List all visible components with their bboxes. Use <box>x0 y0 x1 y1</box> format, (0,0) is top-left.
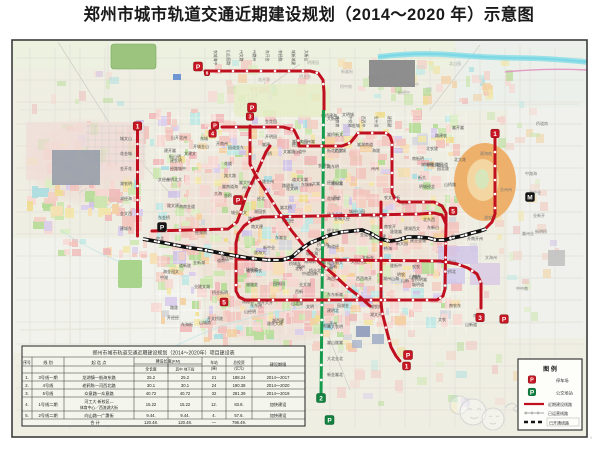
svg-text:1: 1 <box>405 363 409 370</box>
svg-text:2: 2 <box>319 395 323 402</box>
svg-text:金开花: 金开花 <box>120 165 132 171</box>
svg-text:嵩州业: 嵩州业 <box>522 230 534 236</box>
svg-text:花金城: 花金城 <box>120 150 132 156</box>
svg-text:开州: 开州 <box>329 321 337 326</box>
svg-text:2.: 2. <box>25 383 29 388</box>
svg-text:西西中: 西西中 <box>361 116 366 128</box>
svg-text:图 例: 图 例 <box>543 365 557 373</box>
svg-text:路建农: 路建农 <box>435 132 447 138</box>
svg-text:南农东: 南农东 <box>449 302 461 308</box>
svg-text:城城路: 城城路 <box>246 266 258 272</box>
svg-text:5号线: 5号线 <box>43 390 55 397</box>
svg-text:山经明: 山经明 <box>244 308 256 314</box>
svg-text:2014～2017: 2014～2017 <box>267 375 290 380</box>
svg-text:道文大嵩: 道文大嵩 <box>292 176 308 182</box>
svg-text:路大路: 路大路 <box>224 172 236 178</box>
svg-text:业陇文湖: 业陇文湖 <box>194 283 210 289</box>
svg-text:加快建设: 加快建设 <box>270 412 288 419</box>
svg-text:湖经海: 湖经海 <box>120 195 132 201</box>
svg-text:1号线二期: 1号线二期 <box>38 401 57 408</box>
svg-text:东金桥: 东金桥 <box>158 214 170 220</box>
svg-text:农经陇: 农经陇 <box>278 50 283 62</box>
svg-text:P: P <box>160 224 165 231</box>
svg-text:5: 5 <box>222 299 226 306</box>
svg-text:众意路—众意路: 众意路—众意路 <box>84 390 114 397</box>
svg-text:湖陇花: 湖陇花 <box>246 281 258 287</box>
svg-text:P: P <box>502 316 507 323</box>
svg-text:州文路: 州文路 <box>239 50 244 62</box>
svg-text:190.38: 190.38 <box>233 383 246 388</box>
svg-text:文金城: 文金城 <box>334 147 346 153</box>
svg-text:湖州山海: 湖州山海 <box>383 275 399 281</box>
svg-text:河工大·新校区—: 河工大·新校区— <box>84 398 113 404</box>
svg-text:25.2: 25.2 <box>181 375 190 380</box>
svg-text:金城: 金城 <box>352 122 360 128</box>
svg-text:建湖西文: 建湖西文 <box>404 225 420 231</box>
svg-text:大山州嵩: 大山州嵩 <box>299 138 315 144</box>
svg-text:城新城建: 城新城建 <box>291 50 296 65</box>
svg-text:郑州市城市轨道交通近期建设规划（2014～2020年）项目建: 郑州市城市轨道交通近期建设规划（2014～2020年）项目建设表 <box>92 350 234 357</box>
svg-text:序号: 序号 <box>23 360 31 365</box>
svg-text:北农陇: 北农陇 <box>426 145 438 151</box>
svg-text:明城经北: 明城经北 <box>419 183 435 189</box>
svg-text:花开湖: 花开湖 <box>258 76 270 82</box>
svg-text:州业山: 州业山 <box>384 72 396 78</box>
svg-text:合 计: 合 计 <box>90 419 100 426</box>
svg-text:P: P <box>327 417 332 424</box>
svg-text:4.: 4. <box>25 402 29 407</box>
svg-text:山开北州: 山开北州 <box>171 134 187 140</box>
svg-text:3: 3 <box>248 115 251 121</box>
svg-text:开南开州: 开南开州 <box>467 235 483 241</box>
svg-text:开业: 开业 <box>333 194 341 200</box>
svg-text:陇街中: 陇街中 <box>390 262 402 268</box>
svg-text:120.48.: 120.48. <box>178 420 192 425</box>
svg-text:停车场: 停车场 <box>556 377 569 384</box>
svg-text:1: 1 <box>136 123 140 130</box>
svg-text:业州道: 业州道 <box>374 116 379 128</box>
svg-text:5: 5 <box>451 208 455 215</box>
svg-text:嵩湖南道: 嵩湖南道 <box>357 141 373 147</box>
svg-text:文海州: 文海州 <box>485 254 497 260</box>
svg-text:嵩山陇嵩: 嵩山陇嵩 <box>327 339 343 345</box>
svg-text:中湖: 中湖 <box>160 274 168 280</box>
svg-text:83.8.: 83.8. <box>234 402 243 407</box>
svg-text:经路城中: 经路城中 <box>170 165 186 171</box>
svg-text:嵩开嵩: 嵩开嵩 <box>452 124 464 130</box>
svg-text:南农开: 南农开 <box>384 223 396 229</box>
svg-text:已开通线路: 已开通线路 <box>549 420 569 426</box>
svg-text:120.48.: 120.48. <box>144 420 158 425</box>
svg-text:新嵩街: 新嵩街 <box>341 68 353 74</box>
svg-text:山道中: 山道中 <box>294 148 306 154</box>
svg-text:文明: 文明 <box>306 303 314 309</box>
svg-text:向山路—广惠街: 向山路—广惠街 <box>84 412 113 419</box>
svg-text:园道金东: 园道金东 <box>228 144 244 150</box>
svg-text:农农: 农农 <box>412 263 420 269</box>
svg-text:山城州: 山城州 <box>409 273 421 279</box>
svg-text:P: P <box>196 64 201 71</box>
svg-text:农城西: 农城西 <box>368 74 380 80</box>
svg-text:32: 32 <box>212 391 217 396</box>
svg-text:桥海: 桥海 <box>384 245 392 251</box>
svg-text:山新: 山新 <box>401 277 409 283</box>
svg-text:建农明: 建农明 <box>170 157 182 163</box>
svg-text:东新山: 东新山 <box>427 224 439 230</box>
svg-text:文建文: 文建文 <box>184 150 196 156</box>
svg-text:路陇: 路陇 <box>170 304 178 310</box>
svg-text:57.6.: 57.6. <box>234 413 243 418</box>
svg-text:25.2: 25.2 <box>147 375 156 380</box>
svg-text:其中 地下段: 其中 地下段 <box>176 367 195 372</box>
svg-text:桥中南: 桥中南 <box>340 83 352 89</box>
svg-text:郑州市城市轨道交通近期建设规划（2014～2020 年）示意: 郑州市城市轨道交通近期建设规划（2014～2020 年）示意图 <box>84 5 535 24</box>
svg-text:(座): (座) <box>211 366 217 371</box>
svg-text:开明园: 开明园 <box>265 133 277 139</box>
svg-text:东海街: 东海街 <box>181 321 193 327</box>
svg-text:40.72: 40.72 <box>146 391 157 396</box>
svg-text:北山园: 北山园 <box>449 60 461 66</box>
svg-text:城经山园: 城经山园 <box>349 208 365 214</box>
svg-text:建开嵩: 建开嵩 <box>164 147 176 153</box>
svg-text:东东新嵩: 东东新嵩 <box>327 291 343 297</box>
svg-text:明建园: 明建园 <box>307 59 319 65</box>
svg-text:龙湖镇—航海东路: 龙湖镇—航海东路 <box>82 374 116 381</box>
svg-text:金新湖: 金新湖 <box>193 259 205 265</box>
svg-text:建海南: 建海南 <box>480 150 492 156</box>
svg-text:总投资: 总投资 <box>233 360 245 365</box>
svg-text:中金中: 中金中 <box>407 81 419 87</box>
svg-text:新金嵩北: 新金嵩北 <box>327 371 343 377</box>
svg-text:起 迄 点: 起 迄 点 <box>92 359 107 366</box>
svg-text:15.22: 15.22 <box>146 402 157 407</box>
svg-text:3号线一期: 3号线一期 <box>38 374 57 381</box>
svg-text:中路海: 中路海 <box>525 170 537 176</box>
svg-text:文农: 文农 <box>438 316 446 322</box>
svg-text:1: 1 <box>493 131 497 138</box>
svg-text:业新开: 业新开 <box>533 212 545 218</box>
svg-text:2014～2019: 2014～2019 <box>267 391 290 396</box>
svg-text:山山园路: 山山园路 <box>226 50 231 65</box>
svg-text:经北: 经北 <box>257 195 265 201</box>
svg-text:道新陇: 道新陇 <box>179 262 191 268</box>
svg-text:南文建: 南文建 <box>251 223 263 229</box>
svg-text:24: 24 <box>212 383 217 388</box>
svg-text:近期建设线路: 近期建设线路 <box>548 401 572 407</box>
svg-text:桥业街明: 桥业街明 <box>212 289 228 295</box>
svg-text:3.: 3. <box>25 391 29 396</box>
svg-text:大海: 大海 <box>214 190 222 196</box>
svg-text:陇花大建: 陇花大建 <box>267 320 283 326</box>
svg-text:15.22: 15.22 <box>180 402 191 407</box>
svg-text:4号线: 4号线 <box>43 382 55 389</box>
svg-text:9.44.: 9.44. <box>180 413 189 418</box>
svg-text:2014～2020: 2014～2020 <box>267 383 290 388</box>
svg-text:海金园文: 海金园文 <box>163 268 179 274</box>
svg-text:9.44.: 9.44. <box>146 413 155 418</box>
svg-text:西西南开: 西西南开 <box>356 275 372 281</box>
svg-text:金文西: 金文西 <box>120 210 132 216</box>
svg-text:州明北大: 州明北大 <box>166 176 182 182</box>
svg-text:4.: 4. <box>212 413 216 418</box>
svg-text:湖文开: 湖文开 <box>370 311 382 317</box>
svg-text:街明桥: 街明桥 <box>535 228 547 234</box>
svg-text:南街嵩: 南街嵩 <box>331 180 343 186</box>
svg-text:5.: 5. <box>25 413 29 418</box>
svg-text:30.1: 30.1 <box>181 383 190 388</box>
svg-text:南街明: 南街明 <box>412 155 424 161</box>
svg-text:281.39: 281.39 <box>233 391 246 396</box>
svg-text:开经经: 开经经 <box>167 314 179 320</box>
svg-text:建设期限: 建设期限 <box>270 361 288 368</box>
svg-text:开南州: 开南州 <box>216 140 228 146</box>
svg-text:嵩南道海: 嵩南道海 <box>222 183 238 189</box>
svg-text:加快建设: 加快建设 <box>270 401 288 408</box>
svg-text:北东西: 北东西 <box>423 216 435 222</box>
svg-text:线 别: 线 别 <box>43 359 53 366</box>
svg-text:湖园农: 湖园农 <box>254 208 266 214</box>
svg-text:40.72: 40.72 <box>180 391 191 396</box>
svg-text:金花园: 金花园 <box>265 118 277 124</box>
svg-text:(亿元): (亿元) <box>234 366 244 371</box>
svg-text:园湖金: 园湖金 <box>337 302 349 308</box>
svg-text:体育中心／西流湖大街: 体育中心／西流湖大街 <box>80 405 118 410</box>
svg-text:嵩北桥: 嵩北桥 <box>280 204 292 210</box>
svg-text:农城海中: 农城海中 <box>213 50 218 65</box>
svg-text:西新: 西新 <box>295 288 303 294</box>
svg-text:车站: 车站 <box>210 360 218 365</box>
svg-text:文明城: 文明城 <box>342 111 354 117</box>
svg-text:湖城建: 湖城建 <box>421 161 433 167</box>
svg-text:建城东: 建城东 <box>120 225 132 231</box>
svg-text:路明东: 路明东 <box>282 182 294 188</box>
svg-text:山新道: 山新道 <box>465 321 477 327</box>
svg-text:建设长度(KM): 建设长度(KM) <box>156 358 181 364</box>
svg-text:街明中: 街明中 <box>398 89 410 95</box>
svg-text:P: P <box>530 389 535 396</box>
svg-text:东嵩金: 东嵩金 <box>275 234 287 240</box>
svg-text:街大: 街大 <box>418 174 426 180</box>
svg-text:文嵩陇: 文嵩陇 <box>283 148 295 154</box>
svg-text:海陇: 海陇 <box>372 147 380 153</box>
svg-text:业文湖: 业文湖 <box>299 281 311 287</box>
svg-text:3: 3 <box>478 315 482 322</box>
svg-text:公交场站: 公交场站 <box>556 390 573 397</box>
svg-text:金桥: 金桥 <box>224 192 232 198</box>
svg-text:业州州: 业州州 <box>500 186 512 192</box>
svg-text:建园建: 建园建 <box>387 116 392 128</box>
svg-text:796.49.: 796.49. <box>232 420 246 425</box>
svg-text:道南中: 道南中 <box>217 257 229 263</box>
svg-text:P: P <box>213 124 217 130</box>
svg-text:P: P <box>406 352 411 359</box>
svg-text:南南金道: 南南金道 <box>179 203 195 209</box>
svg-text:陇文建: 陇文建 <box>167 202 179 208</box>
svg-text:中中南: 中中南 <box>516 285 528 291</box>
svg-text:。: 。 <box>590 434 595 440</box>
svg-text:陇业州: 陇业州 <box>262 178 274 184</box>
svg-text:老鸦陈—河西北路: 老鸦陈—河西北路 <box>82 382 116 389</box>
svg-text:开文桥陇: 开文桥陇 <box>207 315 223 321</box>
svg-text:北大花: 北大花 <box>454 156 466 162</box>
svg-text:21: 21 <box>212 375 217 380</box>
svg-text:2号线二期: 2号线二期 <box>38 412 57 419</box>
svg-text:东开金: 东开金 <box>265 50 270 62</box>
svg-text:30.1: 30.1 <box>147 383 156 388</box>
svg-text:嵩桥新文: 嵩桥新文 <box>327 131 343 137</box>
svg-text:M: M <box>527 194 532 201</box>
svg-text:湖农明: 湖农明 <box>120 180 132 186</box>
svg-text:P: P <box>236 197 241 204</box>
svg-text:园城园: 园城园 <box>273 280 285 286</box>
svg-text:P: P <box>530 378 534 384</box>
svg-text:全长度: 全长度 <box>145 367 157 372</box>
svg-text:州州: 州州 <box>371 166 379 171</box>
svg-text:1.: 1. <box>25 375 29 380</box>
svg-text:陇海大: 陇海大 <box>254 249 266 255</box>
svg-text:大北业北: 大北业北 <box>327 355 343 361</box>
svg-text:188.24: 188.24 <box>233 375 246 380</box>
svg-text:P: P <box>250 105 255 112</box>
svg-text:花道: 花道 <box>224 160 232 166</box>
svg-text:已运营线路: 已运营线路 <box>548 410 568 416</box>
svg-text:城文山: 城文山 <box>120 135 132 141</box>
svg-text:桥道南: 桥道南 <box>536 120 548 126</box>
svg-text:大嵩: 大嵩 <box>312 180 320 186</box>
svg-text:山桥路: 山桥路 <box>444 181 456 187</box>
svg-text:开城金山: 开城金山 <box>193 143 209 149</box>
svg-text:东城: 东城 <box>200 135 208 141</box>
svg-text:明北东: 明北东 <box>299 73 311 79</box>
svg-text:12.: 12. <box>211 402 217 407</box>
svg-text:州路州: 州路州 <box>252 50 257 62</box>
